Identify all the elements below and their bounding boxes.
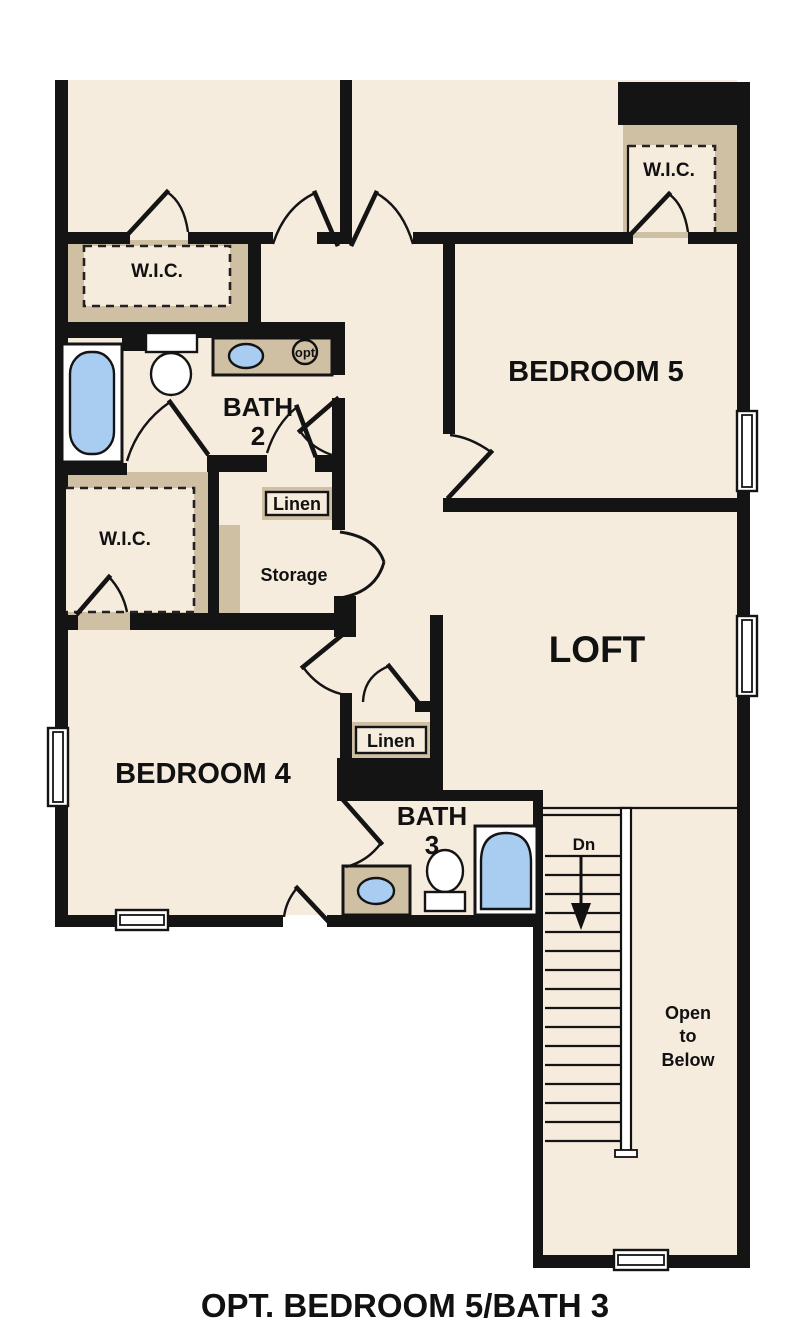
loft-label: LOFT [549, 629, 646, 670]
wall-bedroom4-right [340, 693, 352, 758]
wall-bath3-top [443, 790, 543, 801]
window-loft-right [737, 616, 757, 696]
sink-2-icon [229, 344, 263, 368]
wall-wic-top-left-right [248, 244, 261, 330]
wall-bedroom4-bottom [327, 915, 543, 927]
sink-3-icon [358, 878, 394, 904]
wall-bath2-south [55, 463, 127, 475]
wic-top-left-label: W.I.C. [131, 261, 183, 282]
wall-bedroom5-left [443, 244, 455, 434]
stairs-down-label: Dn [573, 835, 596, 854]
storage-band [219, 525, 240, 615]
linen-upper-label: Linen [273, 494, 321, 514]
wall-wic-bedroom4-south-stub [55, 615, 78, 630]
bath3-label-line1: BATH [397, 801, 467, 831]
wall-corridor [413, 232, 633, 244]
window-bedroom4-left [48, 728, 68, 806]
wall-corridor [688, 232, 737, 244]
wic-bedroom4-label: W.I.C. [99, 529, 151, 550]
stairs-rail [621, 808, 631, 1153]
open-to-below-line1: Open [665, 1003, 711, 1023]
bath2-label-line1: BATH [223, 392, 293, 422]
linen-lower-label: Linen [367, 731, 415, 751]
stairs-rail-foot [615, 1150, 637, 1157]
wall-bath2-divider [122, 338, 147, 351]
svg-text:opt: opt [295, 345, 316, 360]
bath3-label-line2: 3 [425, 830, 439, 860]
window-stairs-bottom [614, 1250, 668, 1270]
wall-corridor [55, 232, 130, 244]
plan-caption: OPT. BEDROOM 5/BATH 3 [201, 1287, 609, 1324]
bath2-label-line2: 2 [251, 421, 265, 451]
window-bedroom4-bottom [116, 910, 168, 930]
wall-bath2-top [55, 322, 345, 338]
bedroom4-label: BEDROOM 4 [115, 758, 291, 790]
wic-bedroom4-box [66, 488, 194, 612]
wic-bedroom5-box [628, 145, 715, 232]
floor-plan: opt [0, 0, 810, 1330]
wall-bath2-south [315, 455, 345, 472]
wall-bath2-south [207, 455, 267, 472]
wall-wic-bedroom4-right [208, 472, 219, 630]
wall-bedroom5-bottom [443, 498, 750, 512]
wall-counter-right [332, 338, 345, 375]
wall-wic-storage-south [130, 613, 356, 630]
window-bedroom5-right [737, 411, 757, 491]
bedroom5-label: BEDROOM 5 [508, 356, 684, 388]
open-to-below-line3: Below [661, 1050, 715, 1070]
floor-plan-page: opt [0, 0, 810, 1330]
open-to-below-line2: to [680, 1026, 697, 1046]
wall-corridor [188, 232, 273, 244]
wic-bedroom5-label: W.I.C. [643, 160, 695, 181]
wall-linen-nook-right [430, 615, 443, 758]
toilet-2-icon [146, 333, 197, 352]
storage-label: Storage [260, 565, 327, 585]
wall-wic-bedroom5-header [618, 82, 737, 125]
wall-linen-lower-block [337, 758, 443, 801]
wall-middle-top [340, 80, 352, 244]
